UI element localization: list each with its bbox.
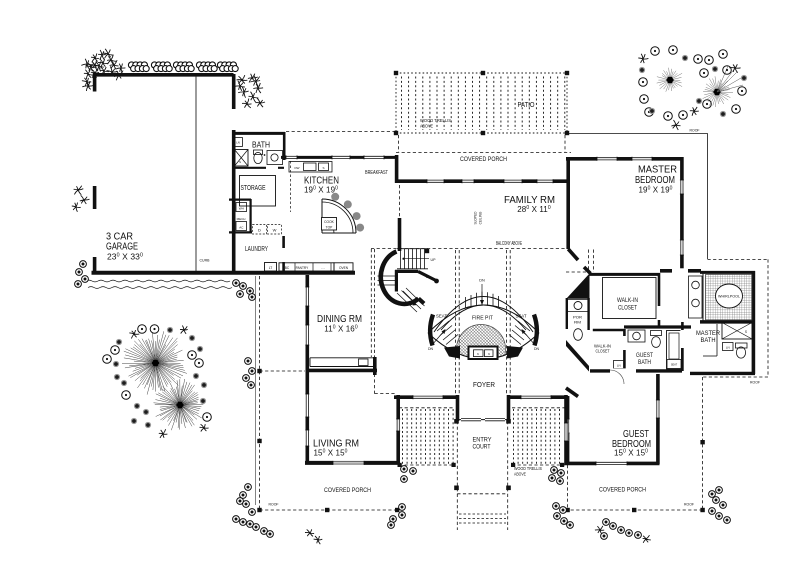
svg-text:BEDROOM: BEDROOM — [635, 174, 675, 186]
svg-text:BREAKFAST: BREAKFAST — [365, 170, 388, 176]
svg-text:ROOF: ROOF — [684, 502, 694, 507]
svg-text:FIRE PIT: FIRE PIT — [472, 316, 493, 322]
svg-text:COVERED PORCH: COVERED PORCH — [460, 156, 507, 163]
svg-text:DN: DN — [534, 347, 540, 351]
svg-text:W: W — [273, 228, 277, 233]
svg-text:WOOD TRELLIS: WOOD TRELLIS — [420, 118, 451, 123]
svg-text:150 X 150: 150 X 150 — [614, 449, 648, 458]
svg-text:230 X 330: 230 X 330 — [107, 252, 143, 262]
svg-text:ROOF: ROOF — [269, 502, 279, 507]
svg-text:SEAT: SEAT — [516, 314, 527, 319]
svg-text:BATH: BATH — [638, 360, 651, 366]
svg-text:190 X 190: 190 X 190 — [638, 186, 672, 195]
svg-text:ROOF: ROOF — [750, 380, 760, 385]
svg-text:LAUNDRY: LAUNDRY — [245, 246, 268, 253]
svg-text:STORAGE: STORAGE — [241, 185, 266, 192]
svg-text:CLOSET: CLOSET — [618, 305, 637, 312]
svg-text:280 X 110: 280 X 110 — [517, 205, 551, 214]
svg-text:UP: UP — [431, 258, 437, 262]
svg-text:150 X 150: 150 X 150 — [313, 449, 347, 458]
svg-text:WALK-IN: WALK-IN — [617, 297, 638, 304]
svg-text:S: S — [322, 166, 324, 170]
svg-text:DN: DN — [428, 347, 434, 351]
svg-text:BC: BC — [285, 266, 290, 270]
svg-text:GUEST: GUEST — [636, 353, 653, 359]
svg-text:SEAT: SEAT — [436, 314, 447, 319]
svg-text:WH: WH — [239, 206, 244, 210]
svg-text:BATH: BATH — [701, 338, 716, 344]
svg-text:COOK: COOK — [324, 220, 335, 224]
svg-text:110 X 160: 110 X 160 — [324, 325, 358, 334]
svg-text:COURT: COURT — [473, 444, 491, 451]
svg-text:CLOSET: CLOSET — [596, 349, 610, 354]
svg-text:WOOD TRELLIS: WOOD TRELLIS — [514, 466, 542, 471]
svg-text:190 X 190: 190 X 190 — [304, 186, 338, 195]
svg-text:DINING RM: DINING RM — [317, 313, 362, 325]
svg-text:SEAT: SEAT — [671, 364, 678, 367]
svg-text:DN: DN — [479, 279, 485, 283]
svg-text:PATIO: PATIO — [518, 102, 535, 109]
svg-text:WHIRLPOOL: WHIRLPOOL — [718, 295, 740, 299]
svg-text:CURB: CURB — [200, 258, 210, 263]
svg-text:CEILING: CEILING — [479, 211, 483, 224]
svg-text:BATH: BATH — [252, 140, 270, 149]
svg-text:ABOVE: ABOVE — [514, 472, 526, 477]
svg-text:D: D — [258, 228, 261, 233]
svg-text:BALCONY ABOVE: BALCONY ABOVE — [496, 241, 522, 247]
svg-text:TOP: TOP — [326, 225, 334, 229]
svg-text:FOYER: FOYER — [473, 380, 495, 389]
svg-text:LT: LT — [269, 266, 273, 270]
svg-text:ROOF: ROOF — [690, 128, 700, 133]
svg-text:ABOVE: ABOVE — [420, 124, 433, 129]
svg-text:CL: CL — [426, 275, 431, 279]
svg-text:COVERED PORCH: COVERED PORCH — [324, 487, 371, 494]
svg-text:S: S — [239, 160, 241, 164]
svg-text:RM: RM — [574, 320, 581, 325]
svg-text:COVERED PORCH: COVERED PORCH — [599, 487, 646, 494]
svg-text:LN: LN — [617, 364, 621, 368]
svg-text:- -: - - — [321, 266, 324, 270]
svg-text:DW: DW — [295, 166, 300, 170]
svg-text:S: S — [745, 330, 747, 334]
svg-text:SLOPED: SLOPED — [474, 211, 478, 225]
svg-text:MECH: MECH — [237, 217, 246, 221]
svg-text:LN: LN — [726, 346, 730, 350]
svg-text:ENTRY: ENTRY — [473, 437, 493, 444]
svg-text:LN: LN — [236, 141, 240, 145]
svg-text:OVEN: OVEN — [339, 266, 349, 270]
svg-text:PANTRY: PANTRY — [296, 266, 310, 270]
